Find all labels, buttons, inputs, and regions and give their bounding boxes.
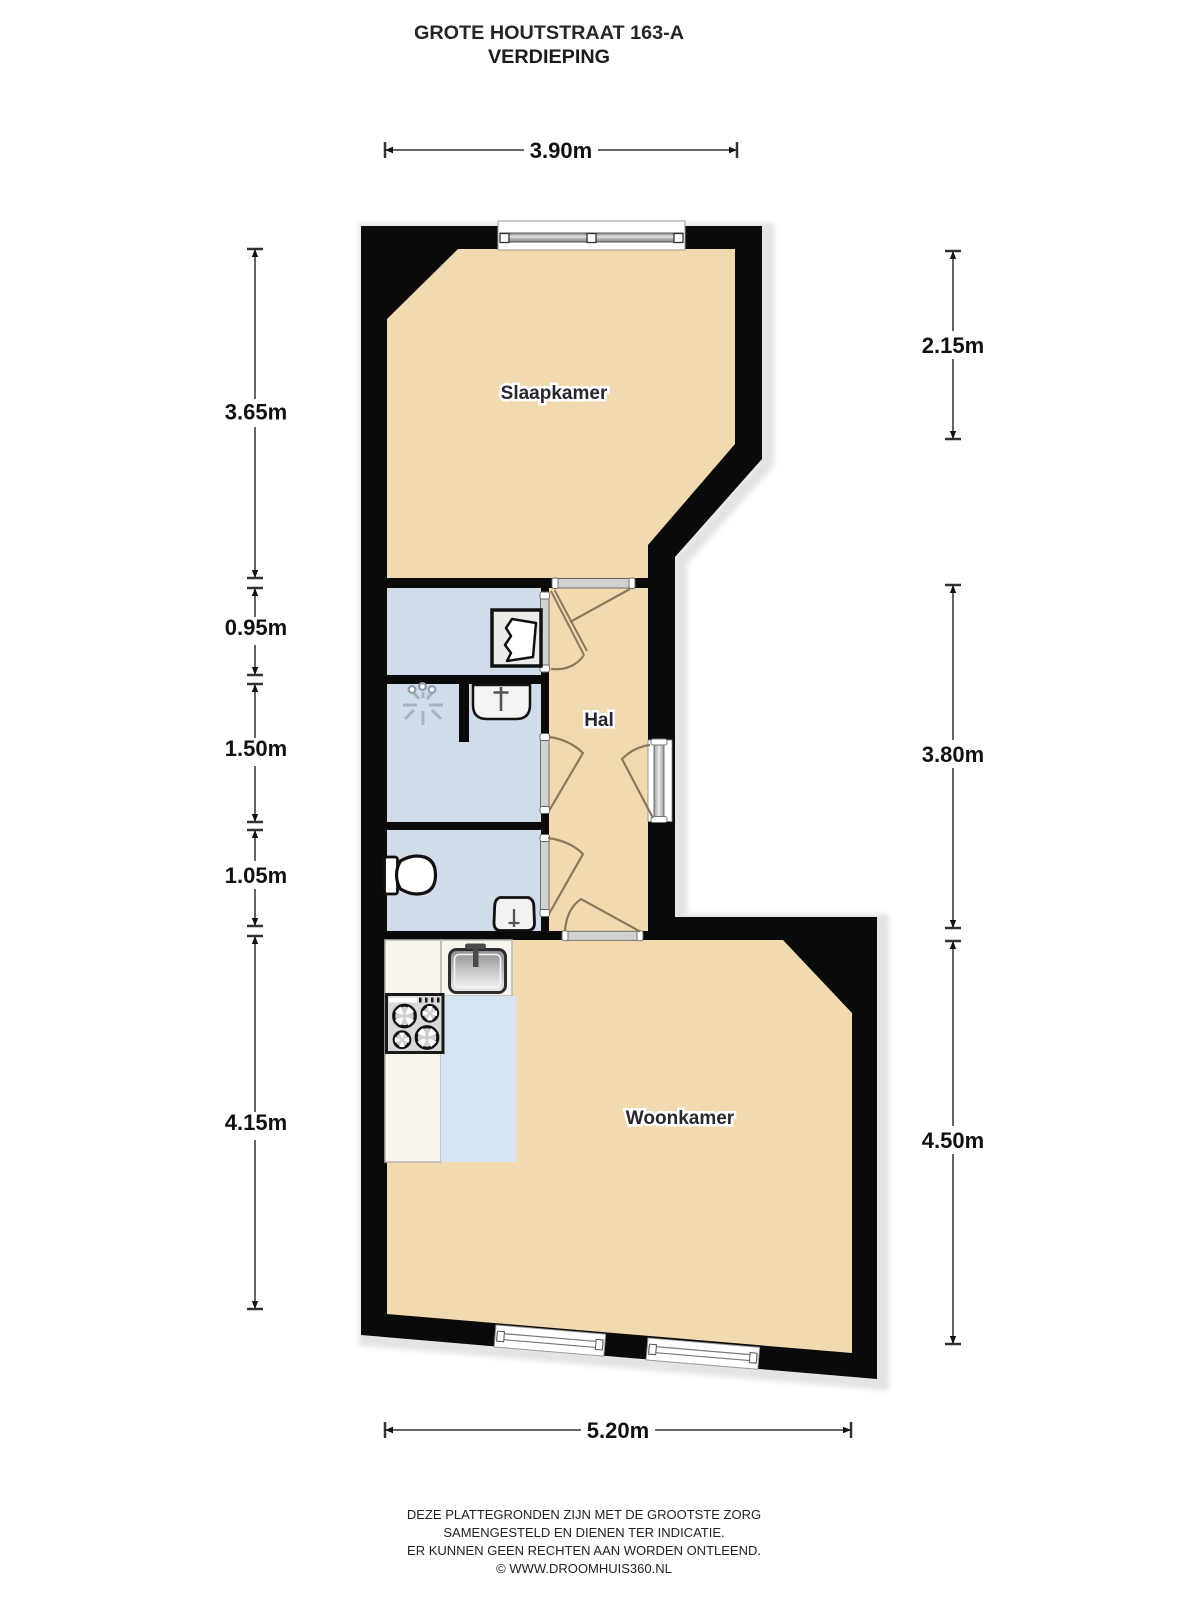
svg-text:4.50m: 4.50m [922, 1128, 984, 1153]
svg-text:1.05m: 1.05m [225, 863, 287, 888]
svg-text:4.15m: 4.15m [225, 1110, 287, 1135]
svg-text:SAMENGESTELD EN DIENEN TER IND: SAMENGESTELD EN DIENEN TER INDICATIE. [443, 1525, 724, 1540]
svg-text:1.50m: 1.50m [225, 736, 287, 761]
svg-text:© WWW.DROOMHUIS360.NL: © WWW.DROOMHUIS360.NL [496, 1561, 672, 1576]
svg-text:3.90m: 3.90m [530, 138, 592, 163]
svg-text:3.80m: 3.80m [922, 742, 984, 767]
svg-text:3.65m: 3.65m [225, 400, 287, 425]
svg-text:VERDIEPING: VERDIEPING [488, 46, 610, 68]
svg-text:DEZE PLATTEGRONDEN ZIJN MET DE: DEZE PLATTEGRONDEN ZIJN MET DE GROOTSTE … [407, 1507, 761, 1522]
svg-text:Woonkamer: Woonkamer [626, 1108, 735, 1129]
svg-text:Slaapkamer: Slaapkamer [501, 383, 608, 404]
svg-text:5.20m: 5.20m [587, 1418, 649, 1443]
svg-text:0.95m: 0.95m [225, 615, 287, 640]
svg-text:Hal: Hal [584, 710, 614, 731]
svg-text:2.15m: 2.15m [922, 333, 984, 358]
svg-text:GROTE HOUTSTRAAT 163-A: GROTE HOUTSTRAAT 163-A [414, 22, 684, 44]
svg-text:ER KUNNEN GEEN RECHTEN AAN WOR: ER KUNNEN GEEN RECHTEN AAN WORDEN ONTLEE… [407, 1543, 761, 1558]
